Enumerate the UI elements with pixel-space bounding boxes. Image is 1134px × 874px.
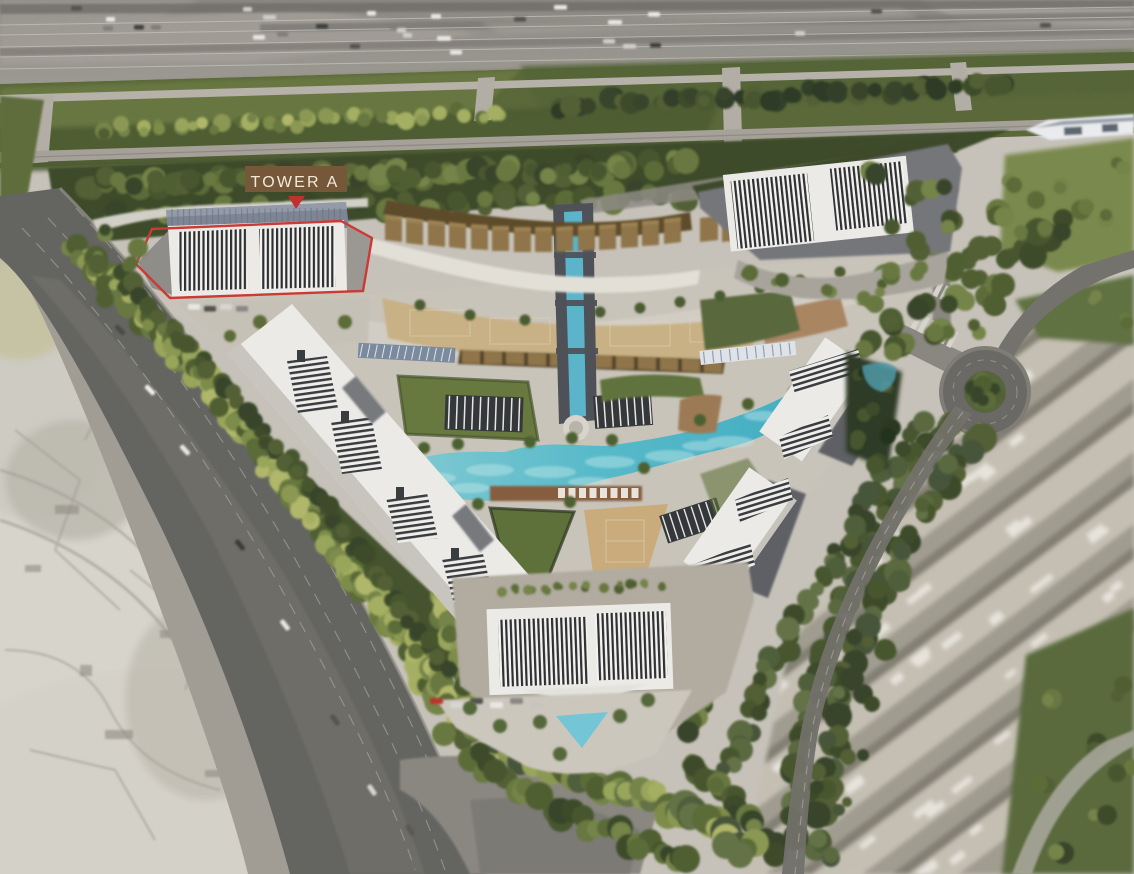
svg-text:TOWER A: TOWER A	[251, 174, 340, 191]
